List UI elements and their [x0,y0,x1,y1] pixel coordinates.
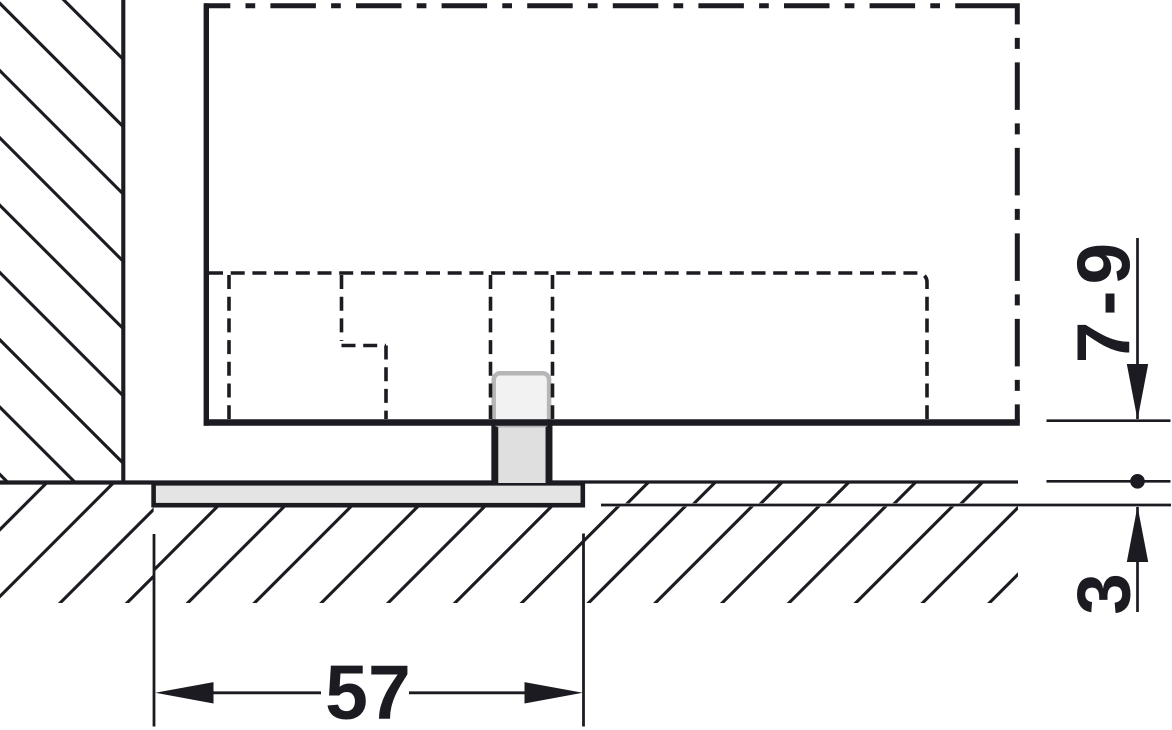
svg-text:7-9: 7-9 [1062,237,1146,363]
svg-text:3: 3 [1062,573,1146,615]
svg-text:57: 57 [325,650,411,730]
